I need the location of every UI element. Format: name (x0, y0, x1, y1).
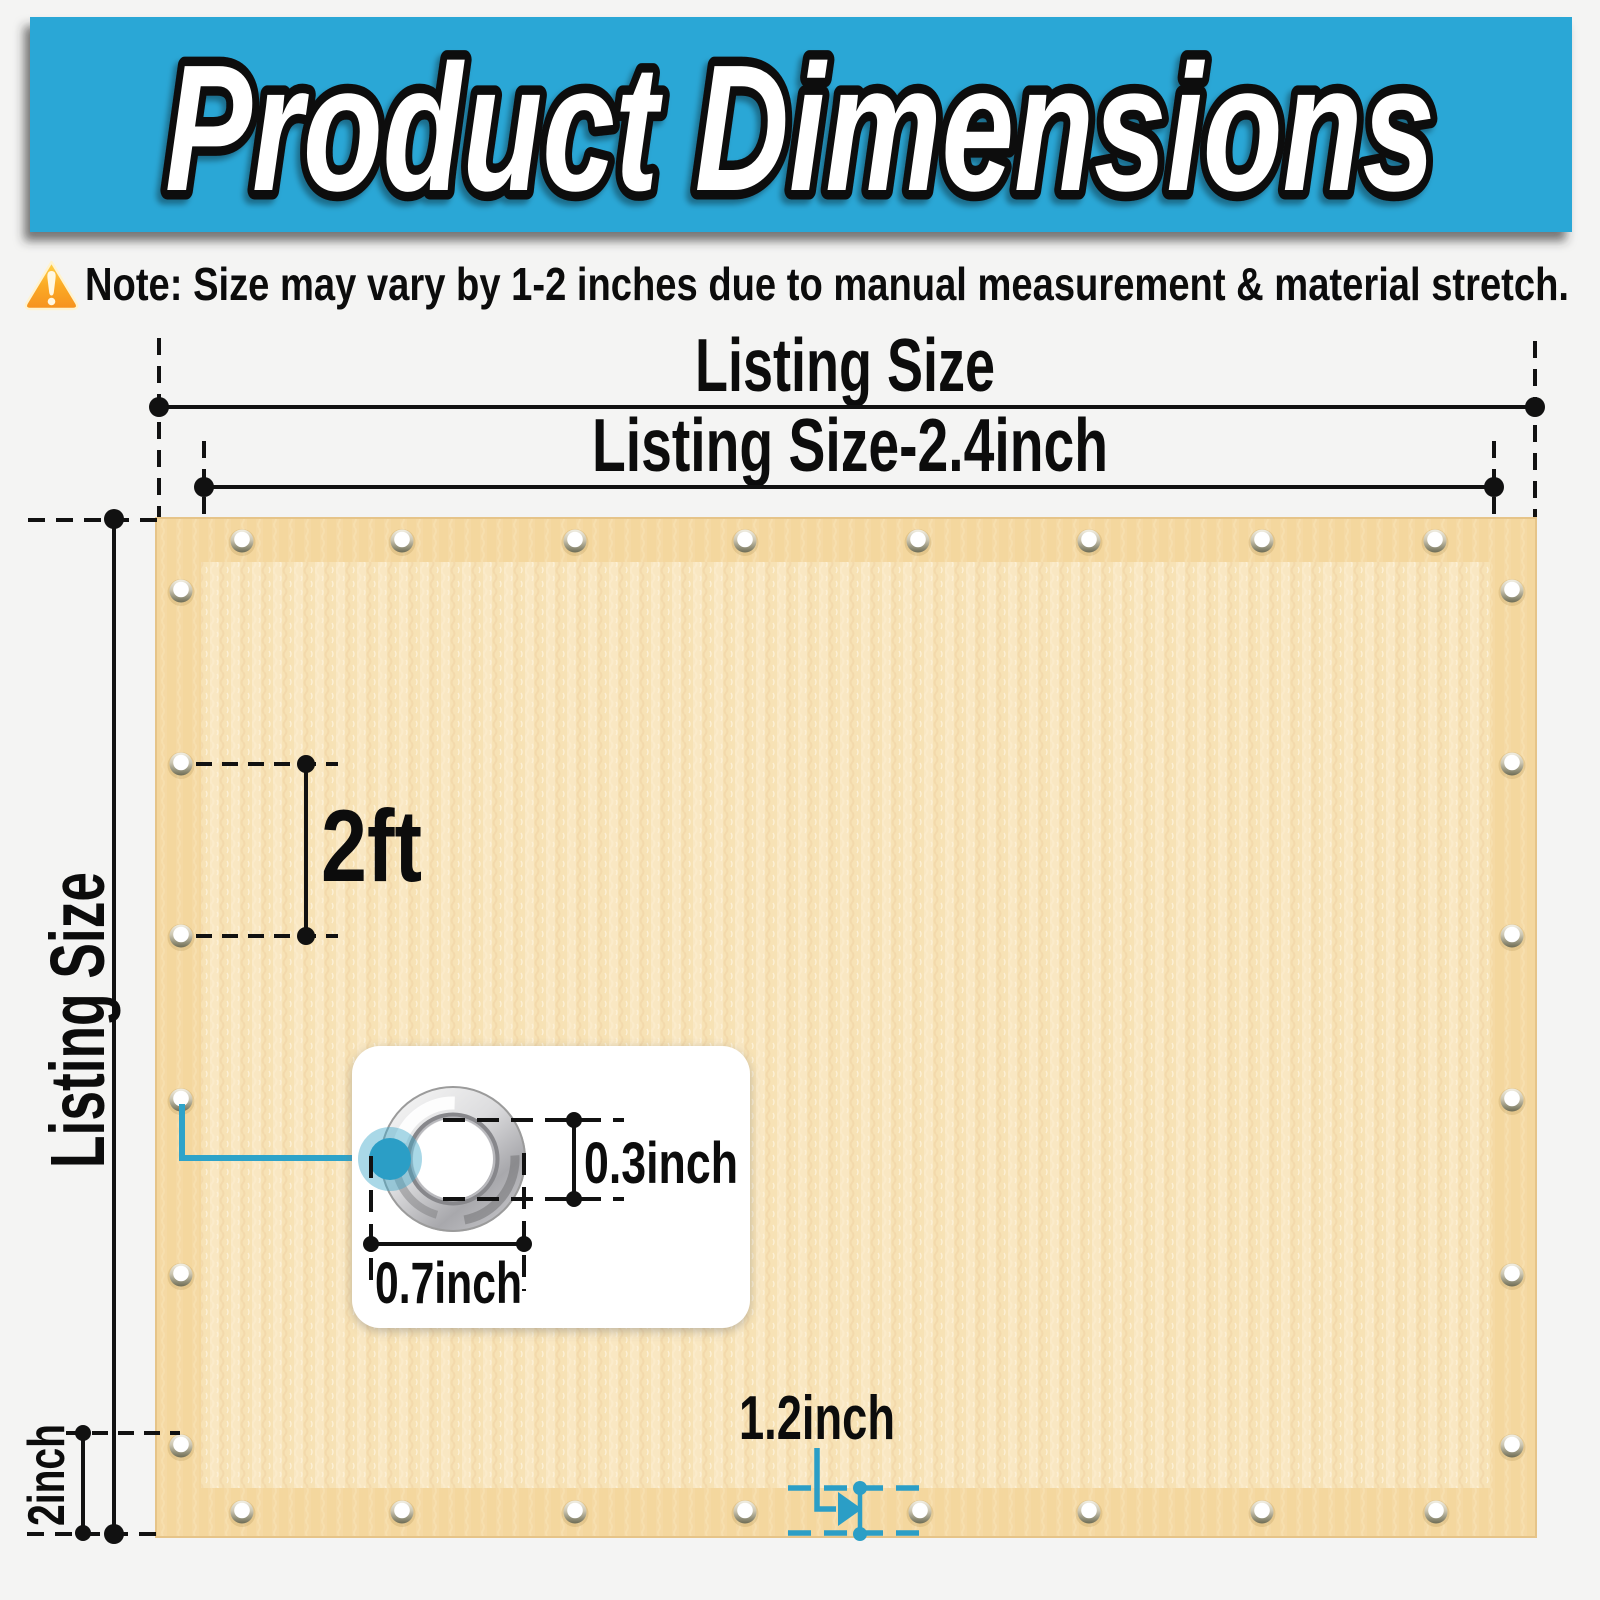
svg-text:Product Dimensions: Product Dimensions (165, 28, 1435, 229)
svg-text:2ft: 2ft (321, 789, 422, 903)
svg-text:0.3inch: 0.3inch (584, 1131, 738, 1196)
svg-text:Listing Size: Listing Size (35, 872, 121, 1168)
svg-text:2inch: 2inch (18, 1424, 76, 1526)
svg-text:0.7inch: 0.7inch (375, 1251, 522, 1316)
svg-text:Note: Size may vary by 1-2 inc: Note: Size may vary by 1-2 inches due to… (85, 258, 1569, 310)
svg-text:Listing Size-2.4inch: Listing Size-2.4inch (592, 403, 1108, 487)
svg-text:Listing Size: Listing Size (695, 323, 995, 407)
svg-text:1.2inch: 1.2inch (739, 1384, 895, 1453)
